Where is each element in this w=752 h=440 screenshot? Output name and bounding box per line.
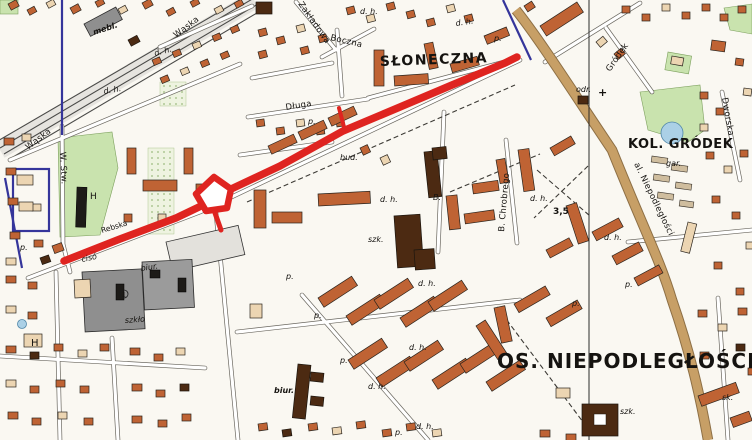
hotel-symbol: H	[31, 338, 39, 349]
area-label-os-niepodleglosci: OS. NIEPODLEGŁOŚCI	[497, 349, 752, 373]
abbr-label-dh: d. h.	[409, 343, 427, 352]
abbr-label-dh: d. h.	[604, 233, 622, 242]
abbr-label-p: p.	[313, 311, 322, 320]
abbr-label-dh: d. h.	[418, 279, 436, 288]
abbr-label-dh: d. h.	[380, 195, 398, 204]
abbr-label-sk: sk.	[722, 393, 733, 402]
abbr-label-b: B.	[433, 193, 441, 202]
abbr-label-p: p.	[493, 34, 502, 43]
abbr-label-p: p.	[571, 299, 580, 308]
scanned-city-map: SŁONECZNA KOL. GRÓDEK OS. NIEPODLEGŁOŚCI…	[0, 0, 752, 440]
abbr-label-gar: gar.	[666, 159, 681, 168]
abbr-label-bud: bud.	[340, 153, 358, 162]
dark-hall-building	[76, 187, 87, 227]
abbr-label-szklo: szkło	[125, 315, 146, 325]
map-canvas: SŁONECZNA KOL. GRÓDEK OS. NIEPODLEGŁOŚCI…	[0, 0, 752, 440]
abbr-label-dh: d. h.	[360, 7, 378, 16]
street-label-w-stw: W. Stw.	[57, 152, 69, 185]
abbr-label-dh: d. h.	[530, 194, 548, 203]
abbr-label-p: p.	[394, 428, 403, 437]
abbr-label-szk: szk.	[368, 235, 384, 244]
abbr-label-p: p.	[624, 280, 633, 289]
abbr-label-p: p.	[285, 272, 294, 281]
abbr-label-biur: biur.	[274, 386, 294, 395]
abbr-label-szk: szk.	[620, 407, 636, 416]
church-cross-icon: +	[598, 86, 607, 99]
circled-number-value: 1	[122, 292, 126, 299]
abbr-label-odr: odr.	[576, 85, 591, 94]
distance-label-3-5: 3,5	[553, 207, 569, 217]
abbr-label-p: p.	[339, 356, 348, 365]
abbr-label-p: p.	[307, 117, 316, 126]
area-label-kol-grodek: KOL. GRÓDEK	[628, 136, 734, 152]
abbr-label-dh: d. h.	[416, 422, 434, 431]
hotel-symbol: H	[90, 192, 97, 202]
small-pond	[18, 320, 27, 329]
abbr-label-p: p.	[19, 243, 28, 252]
abbr-label-dh: d. h.	[368, 382, 386, 391]
